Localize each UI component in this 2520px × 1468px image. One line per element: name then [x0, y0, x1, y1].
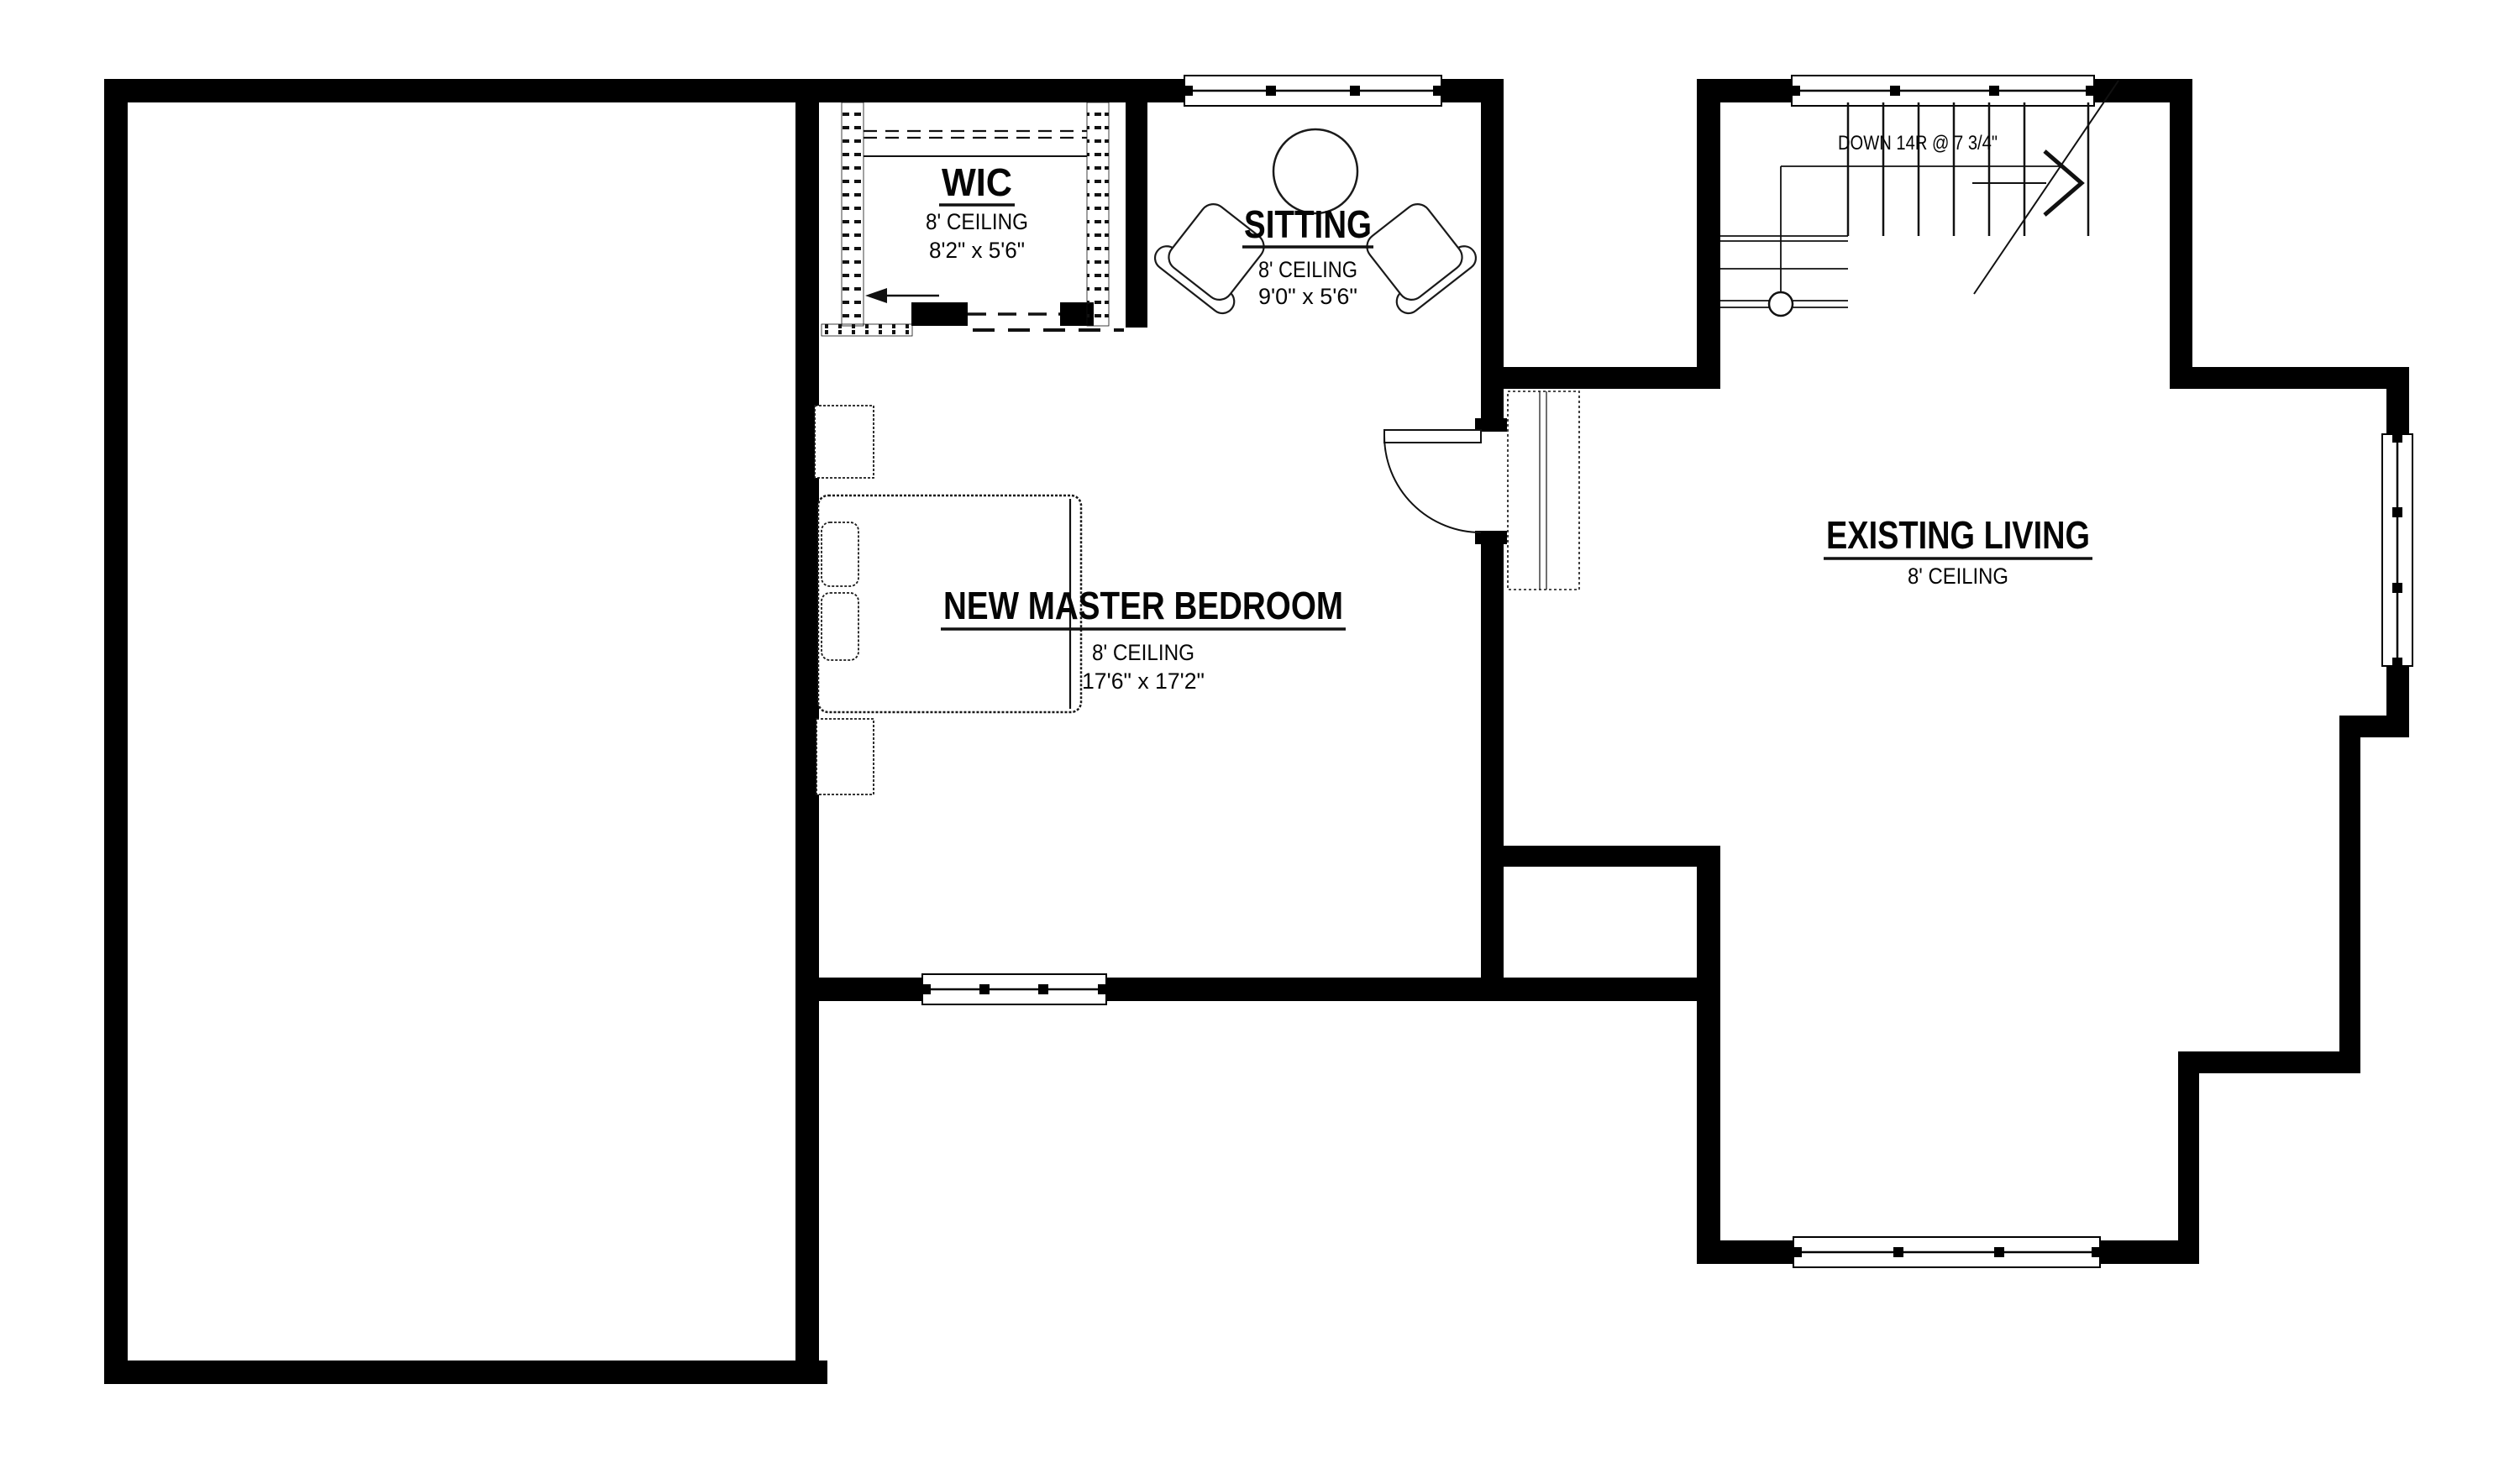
window-bay-right [2382, 433, 2412, 668]
wall-bedroom-east-upper [1481, 102, 1504, 430]
door-master-to-living [1384, 418, 1507, 544]
master-bedroom-dims: 17'6" x 17'2" [1082, 668, 1205, 694]
chase-outline [1508, 391, 1579, 590]
existing-wall-hatch-left [842, 102, 864, 326]
existing-living-ceiling: 8' CEILING [1908, 564, 2008, 589]
wic-bottom-hatch [822, 324, 912, 336]
sitting-label: SITTING [1244, 202, 1372, 246]
wall-living-west-lower [1697, 846, 1720, 1264]
wic-label: WIC [942, 160, 1012, 204]
wall-leftroom-east [795, 102, 819, 1361]
pillow [822, 522, 858, 586]
floor-plan-drawing: WIC 8' CEILING 8'2" x 5'6" SITTING 8' CE… [0, 0, 2520, 1468]
wall-bedroom-east-lower [1481, 544, 1504, 1001]
master-bedroom-ceiling: 8' CEILING [1092, 640, 1194, 665]
sitting-ceiling: 8' CEILING [1258, 257, 1357, 282]
wic-ceiling: 8' CEILING [926, 209, 1028, 234]
master-bedroom-label: NEW MASTER BEDROOM [943, 584, 1343, 627]
pillow [822, 593, 858, 660]
wall-living-east-mid [2339, 737, 2360, 1073]
wall-stair-east [2170, 102, 2192, 367]
nightstand-top [815, 406, 874, 478]
down-arrow-head-icon [2045, 151, 2082, 215]
window-sitting-top [1183, 76, 1443, 106]
stair-newel-post [1769, 292, 1793, 316]
stair-break-line [1974, 81, 2118, 294]
window-bedroom-bottom [921, 974, 1108, 1004]
wic-dims: 8'2" x 5'6" [929, 238, 1025, 263]
window-stair-top [1790, 76, 2096, 106]
chase [1508, 391, 1579, 590]
nightstand-bottom [816, 719, 874, 794]
wall-bay-top [2170, 367, 2409, 389]
wall-bay-bottom [2339, 716, 2409, 737]
door-swing-arc [1384, 436, 1481, 532]
window-living-bottom [1792, 1237, 2102, 1267]
existing-living-label: EXISTING LIVING [1826, 513, 2090, 557]
existing-wall-hatch-right [1087, 102, 1109, 326]
sitting-dims: 9'0" x 5'6" [1258, 284, 1357, 309]
wall-wic-east [1126, 102, 1147, 328]
stairs-down-label: DOWN 14R @ 7 3/4" [1838, 132, 1998, 155]
round-table [1273, 129, 1357, 213]
walls [104, 79, 2409, 1384]
wall-living-step [2178, 1051, 2360, 1073]
wall-notch-south-top [1504, 846, 1720, 867]
wall-notch-top [1504, 367, 1697, 389]
wic-arrow-head-icon [865, 288, 887, 303]
stairs [1720, 81, 2118, 316]
wall-stair-west [1697, 102, 1720, 389]
wall-living-east-lower [2178, 1073, 2199, 1264]
wall-left-exterior [104, 79, 128, 1384]
wall-wic-stub-left [911, 302, 968, 326]
wall-leftroom-bottom [104, 1361, 827, 1384]
chair-right [1354, 192, 1481, 317]
floor-plan: WIC 8' CEILING 8'2" x 5'6" SITTING 8' CE… [0, 0, 2520, 1468]
door-leaf [1384, 430, 1481, 443]
